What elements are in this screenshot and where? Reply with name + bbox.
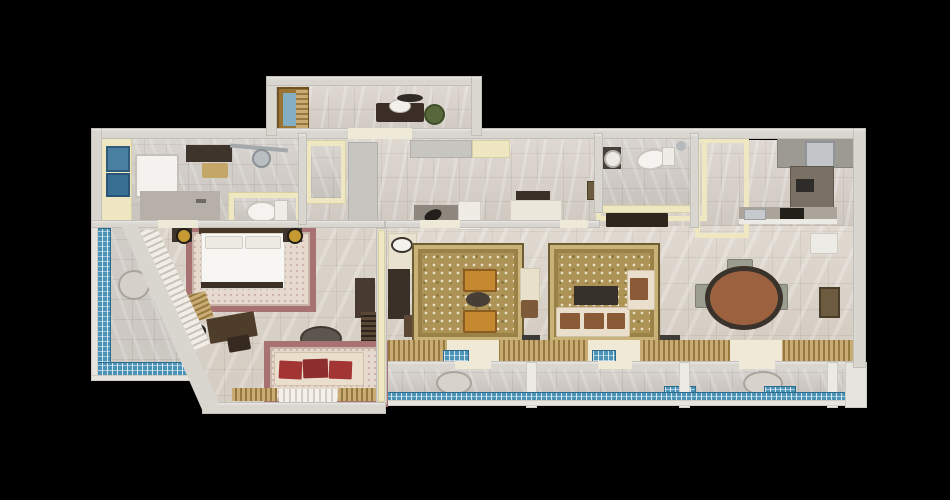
right-outer-wall (853, 128, 866, 368)
dining-wall-art (819, 287, 840, 318)
hall-door-threshold-2 (560, 220, 588, 228)
gold-armchair-top (463, 269, 497, 292)
settee-cushion-2 (303, 359, 329, 379)
deck-threshold-3 (730, 340, 782, 362)
wall-shaft-2 (410, 140, 472, 158)
stone-counter (140, 191, 220, 222)
bathroom-art-frame-1 (106, 146, 130, 172)
gold-armchair-bottom (463, 310, 497, 333)
living-table-lamp (391, 237, 413, 253)
entry-runner-rug (296, 90, 308, 130)
foyer-wall-mirror (397, 94, 423, 102)
media-console (606, 213, 668, 227)
bed-foot-throw (201, 282, 283, 288)
wall-appliance-panel (810, 233, 838, 254)
bedroom-bottom-wall (202, 402, 386, 414)
vanity-stool (202, 163, 228, 178)
balcony-outer-rim (380, 400, 858, 406)
foyer-opening-threshold (348, 128, 412, 139)
bedside-lamp-right (287, 228, 303, 244)
toilet-tank (274, 200, 288, 222)
hall-door-threshold-1 (420, 220, 460, 228)
between-console (520, 268, 540, 302)
between-chair (521, 300, 538, 318)
kitchen-sink (744, 209, 766, 220)
left-outer-wall (91, 128, 102, 226)
side-balcony-blue-left (96, 228, 111, 378)
foyer-wall-top (266, 76, 482, 86)
sofa-cushion-3 (607, 313, 625, 329)
window-mat (279, 389, 337, 402)
guest-shower-drain (676, 141, 686, 151)
round-coffee-table (466, 292, 490, 307)
foyer-plant (424, 104, 445, 125)
balcony-corner-block (845, 362, 867, 408)
cooktop (780, 208, 804, 219)
side-balcony-bottom-rim (91, 375, 195, 381)
hall-closet-floor (311, 146, 341, 198)
fridge (805, 141, 835, 168)
guest-bathroom-bottom-wall (598, 205, 697, 213)
wall-oven (796, 179, 814, 192)
guestbath-closet-wall (690, 133, 699, 228)
settee-cushion-3 (329, 361, 353, 380)
window-bench-2 (338, 388, 378, 401)
bathroom-hall-wall (298, 133, 307, 225)
settee-cushion-1 (279, 360, 303, 379)
living-armchair-seat (630, 278, 648, 300)
bathroom-art-frame-2 (106, 173, 130, 197)
foyer-wall-right (471, 76, 482, 136)
bed-pillow-1 (205, 236, 243, 249)
hall-cream-block (472, 140, 510, 158)
shower-head (252, 149, 271, 168)
tv-coffee-table (574, 286, 618, 305)
bedroom-living-wall-face (378, 230, 385, 402)
counter-faucet (196, 199, 206, 203)
bed-pillow-2 (245, 236, 281, 249)
window-bench-1 (232, 388, 277, 401)
floorplan-canvas (0, 0, 950, 500)
bedside-lamp-left (176, 228, 192, 244)
sofa-cushion-2 (584, 313, 604, 329)
side-balcony-rim (91, 224, 98, 378)
sofa-cushion-1 (560, 313, 580, 329)
bathroom-door-threshold (158, 220, 198, 228)
hall-guestbath-wall (594, 133, 603, 213)
dining-table (705, 266, 783, 330)
vanity-counter (186, 145, 232, 162)
guest-sink (604, 150, 622, 168)
living-tall-cabinet (388, 269, 410, 319)
wall-shaft-1 (348, 142, 378, 228)
guest-toilet-tank (662, 147, 675, 166)
